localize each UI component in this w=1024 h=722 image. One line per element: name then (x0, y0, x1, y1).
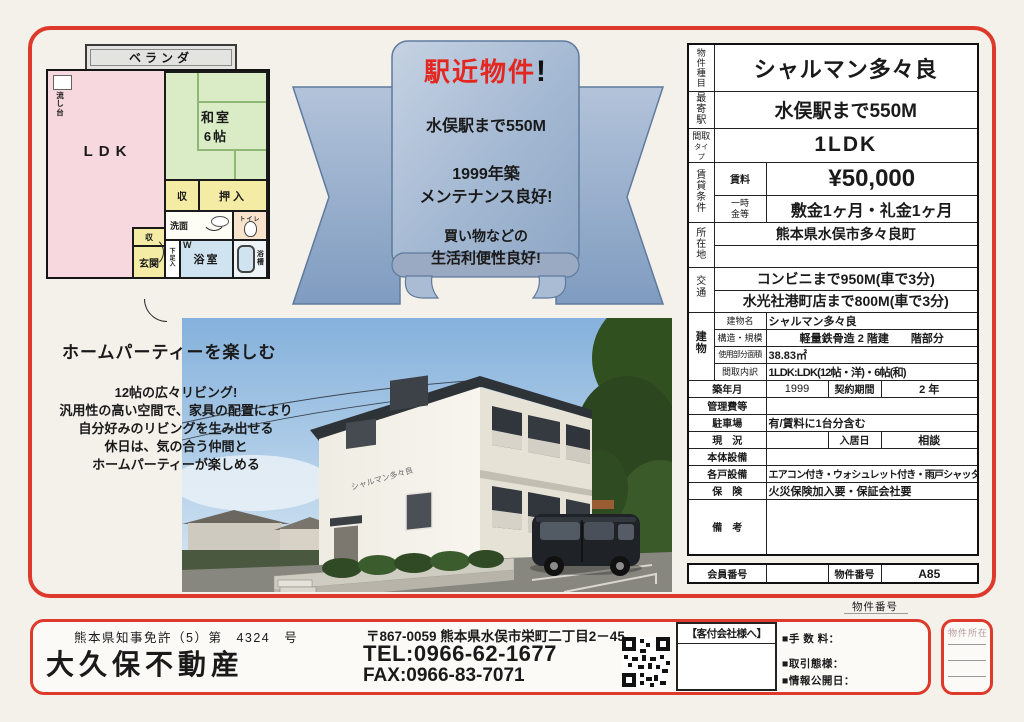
kyakuzuke-box: 【客付会社様へ】 (676, 622, 777, 691)
kanri-value (766, 397, 978, 414)
party-line4: 休日は、気の合う仲間と (40, 438, 312, 456)
member-label: 会員番号 (688, 564, 766, 583)
b4-value: 1LDK:LDK(12帖・洋)・6帖(和) (766, 363, 978, 380)
genkyo-label: 現 況 (688, 431, 766, 448)
tatami-line (234, 149, 236, 179)
access-label-cell: 交通 (688, 267, 714, 312)
biko-label: 備 考 (688, 499, 766, 555)
tatami-line (197, 101, 266, 103)
ribbon-headline-exclamation: ! (536, 55, 548, 88)
genkyo-value (766, 431, 828, 448)
shozai-label: 物件所在 (948, 626, 988, 639)
joho-label: ■情報公開日： (782, 673, 855, 688)
party-line5: ホームパーティーが楽しめる (40, 456, 312, 474)
washitsu-size-label: 6帖 (204, 126, 228, 145)
b3-label: 使用部分面積 (714, 346, 766, 363)
ichiji-label: 一時金等 (731, 198, 750, 218)
veranda-label: ベランダ (90, 49, 232, 66)
biko-value (766, 499, 978, 555)
sink-icon (53, 75, 72, 90)
b3-value: 38.83㎡ (766, 346, 978, 363)
b2-label: 構造・規模 (714, 329, 766, 346)
hontai-value (766, 448, 978, 465)
ribbon-line5: 生活利便性良好! (390, 247, 582, 268)
fee-label: ■手 数 料： (782, 631, 840, 646)
bukken-no-underline (844, 613, 908, 614)
kakudo-value: エアコン付き・ウォシュレット付き・雨戸シャッター付 (766, 465, 978, 482)
ichiji-label-cell: 一時金等 (714, 195, 766, 222)
madori-label: 間取 (691, 129, 712, 142)
oshiire-label: 押入 (219, 188, 247, 204)
parking-value: 有/賃料に1台分含む (766, 414, 978, 431)
tatami-line (197, 73, 199, 151)
toilet-icon (244, 221, 257, 237)
room-washitsu: 和室 6帖 (164, 71, 268, 181)
bukken-label: 物件番号 (828, 564, 881, 583)
qr-code (622, 637, 670, 692)
ribbon-left-tail (293, 87, 400, 304)
party-line1: 12帖の広々リビング! (40, 384, 312, 402)
floor-plan-unit: LDK 和室 6帖 収 押入 洗面 トイレ 収 下足入 W浴室 浴槽 玄関 流し… (46, 69, 270, 279)
access-label: 交通 (696, 276, 707, 298)
station-value: 水俣駅まで550M (714, 91, 978, 128)
ldk-label: LDK (84, 143, 133, 160)
bath-label: 浴室 (194, 251, 220, 267)
location-value: 熊本県水俣市多々良町 (714, 222, 978, 245)
shoe-storage-label: 下足入 (169, 249, 175, 269)
location-label: 所在地 (696, 228, 707, 262)
party-line3: 自分好みのリビングを生み出せる (40, 420, 312, 438)
access-value1: コンビニまで950M(車で3分) (714, 267, 978, 290)
bukken-no-footer-label: 物件番号 (852, 599, 898, 614)
station-label-cell: 最寄駅 (688, 91, 714, 128)
bukken-value: A85 (881, 564, 978, 583)
ribbon-line1: 水俣駅まで550M (390, 112, 582, 136)
kanri-label: 管理費等 (688, 397, 766, 414)
veranda: ベランダ (85, 44, 237, 71)
b1-label: 建物名 (714, 312, 766, 329)
washitsu-label: 和室 (201, 107, 231, 126)
madori-value: 1LDK (714, 128, 978, 162)
built-label: 築年月 (688, 380, 766, 397)
b1-value: シャルマン多々良 (766, 312, 978, 329)
chintai-label: 賃貸条件 (696, 170, 707, 215)
sink-label: 流し台 (56, 92, 64, 117)
ichiji-value: 敷金1ヶ月・礼金1ヶ月 (766, 195, 978, 222)
chintai-label-cell: 賃貸条件 (688, 162, 714, 222)
shozai-line (948, 676, 986, 677)
phone-number: TEL:0966-62-1677 (363, 641, 557, 667)
shozai-line (948, 644, 986, 645)
hoken-label: 保 険 (688, 482, 766, 499)
building-label: 建物 (695, 331, 707, 356)
shozai-box: 物件所在 (941, 619, 993, 695)
kakudo-label: 各戸設備 (688, 465, 766, 482)
madori-label-cell: 間取タイプ (688, 128, 714, 162)
building-label-cell: 建物 (688, 312, 714, 380)
torihiki-label: ■取引態様： (782, 656, 844, 671)
door-arc (134, 237, 164, 267)
party-line2: 汎用性の高い空間で、家具の配置により (40, 402, 312, 420)
bathtub-icon (237, 245, 255, 273)
door-arc (202, 207, 226, 231)
closet-label: 収 (177, 188, 187, 203)
ribbon-headline: 駅近物件! (390, 52, 582, 89)
ribbon-line2: 1999年築 (390, 160, 582, 184)
rent-value: ¥50,000 (766, 162, 978, 195)
keiyaku-value: 2 年 (881, 380, 978, 397)
floor-plan: ベランダ LDK 和室 6帖 収 押入 洗面 トイレ 収 下足入 W浴室 浴槽 … (46, 42, 278, 294)
tub-label: 浴槽 (257, 251, 264, 267)
member-row: 会員番号 物件番号 A85 (687, 563, 979, 584)
built-value: 1999 (766, 380, 828, 397)
shozai-line (948, 660, 986, 661)
member-value (766, 564, 828, 583)
keiyaku-label: 契約期間 (828, 380, 881, 397)
location-label-cell: 所在地 (688, 222, 714, 267)
property-name: シャルマン多々良 (714, 44, 978, 91)
washer-mark: W (183, 240, 194, 250)
nyukyo-value: 相談 (881, 431, 978, 448)
party-copy: 12帖の広々リビング! 汎用性の高い空間で、家具の配置により 自分好みのリビング… (40, 384, 312, 474)
b4-label: 間取内訳 (714, 363, 766, 380)
ribbon-line4: 買い物などの (390, 226, 582, 246)
tatami-line (197, 149, 266, 151)
ribbon-headline-text: 駅近物件 (424, 57, 536, 87)
location-value2 (714, 245, 978, 267)
ribbon-curl-left (405, 276, 438, 298)
property-table: 物件種目 シャルマン多々良 最寄駅 水俣駅まで550M 間取タイプ 1LDK 賃… (687, 43, 979, 556)
real-estate-flyer: { "colors": { "accent_red": "#dd3a2b", "… (0, 0, 1024, 722)
b2-value: 軽量鉄骨造 2 階建 階部分 (766, 329, 978, 346)
room-tub: 浴槽 (232, 239, 268, 279)
hoken-value: 火災保険加入要・保証会社要 (766, 482, 978, 499)
ribbon-curl-right (533, 276, 566, 298)
ribbon-banner: 駅近物件! 水俣駅まで550M 1999年築 メンテナンス良好! 買い物などの … (288, 40, 668, 308)
room-closet: 収 (164, 179, 200, 212)
minivan (530, 514, 642, 576)
steps (278, 580, 316, 592)
type-label: 物件種目 (697, 48, 706, 88)
madori-label2: タイプ (691, 142, 712, 162)
fax-number: FAX:0966-83-7071 (363, 665, 525, 687)
room-bath: W浴室 (179, 239, 234, 279)
party-heading: ホームパーティーを楽しむ (62, 338, 276, 363)
kyakuzuke-label: 【客付会社様へ】 (678, 624, 775, 644)
senmen-label: 洗面 (170, 219, 188, 232)
type-label-cell: 物件種目 (688, 44, 714, 91)
access-value2: 水光社港町店まで800M(車で3分) (714, 290, 978, 312)
nyukyo-label: 入居日 (828, 431, 881, 448)
hontai-label: 本体設備 (688, 448, 766, 465)
parking-label: 駐車場 (688, 414, 766, 431)
lower-window (406, 492, 432, 531)
upper-window (390, 375, 428, 410)
rent-label: 賃料 (714, 162, 766, 195)
room-toilet: トイレ (232, 210, 268, 241)
station-label: 最寄駅 (696, 93, 707, 127)
ribbon-line3: メンテナンス良好! (390, 183, 582, 207)
upper-window (346, 419, 376, 449)
company-name: 大久保不動産 (46, 643, 244, 683)
